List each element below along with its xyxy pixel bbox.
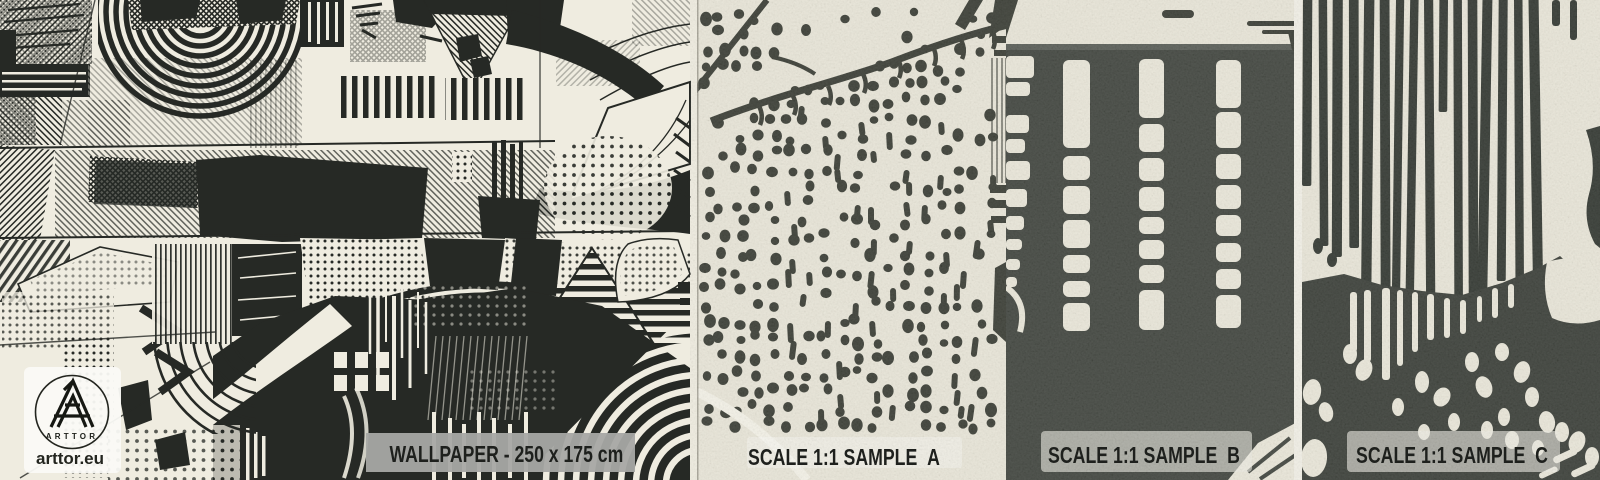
svg-text:ARTTOR: ARTTOR	[46, 432, 98, 441]
